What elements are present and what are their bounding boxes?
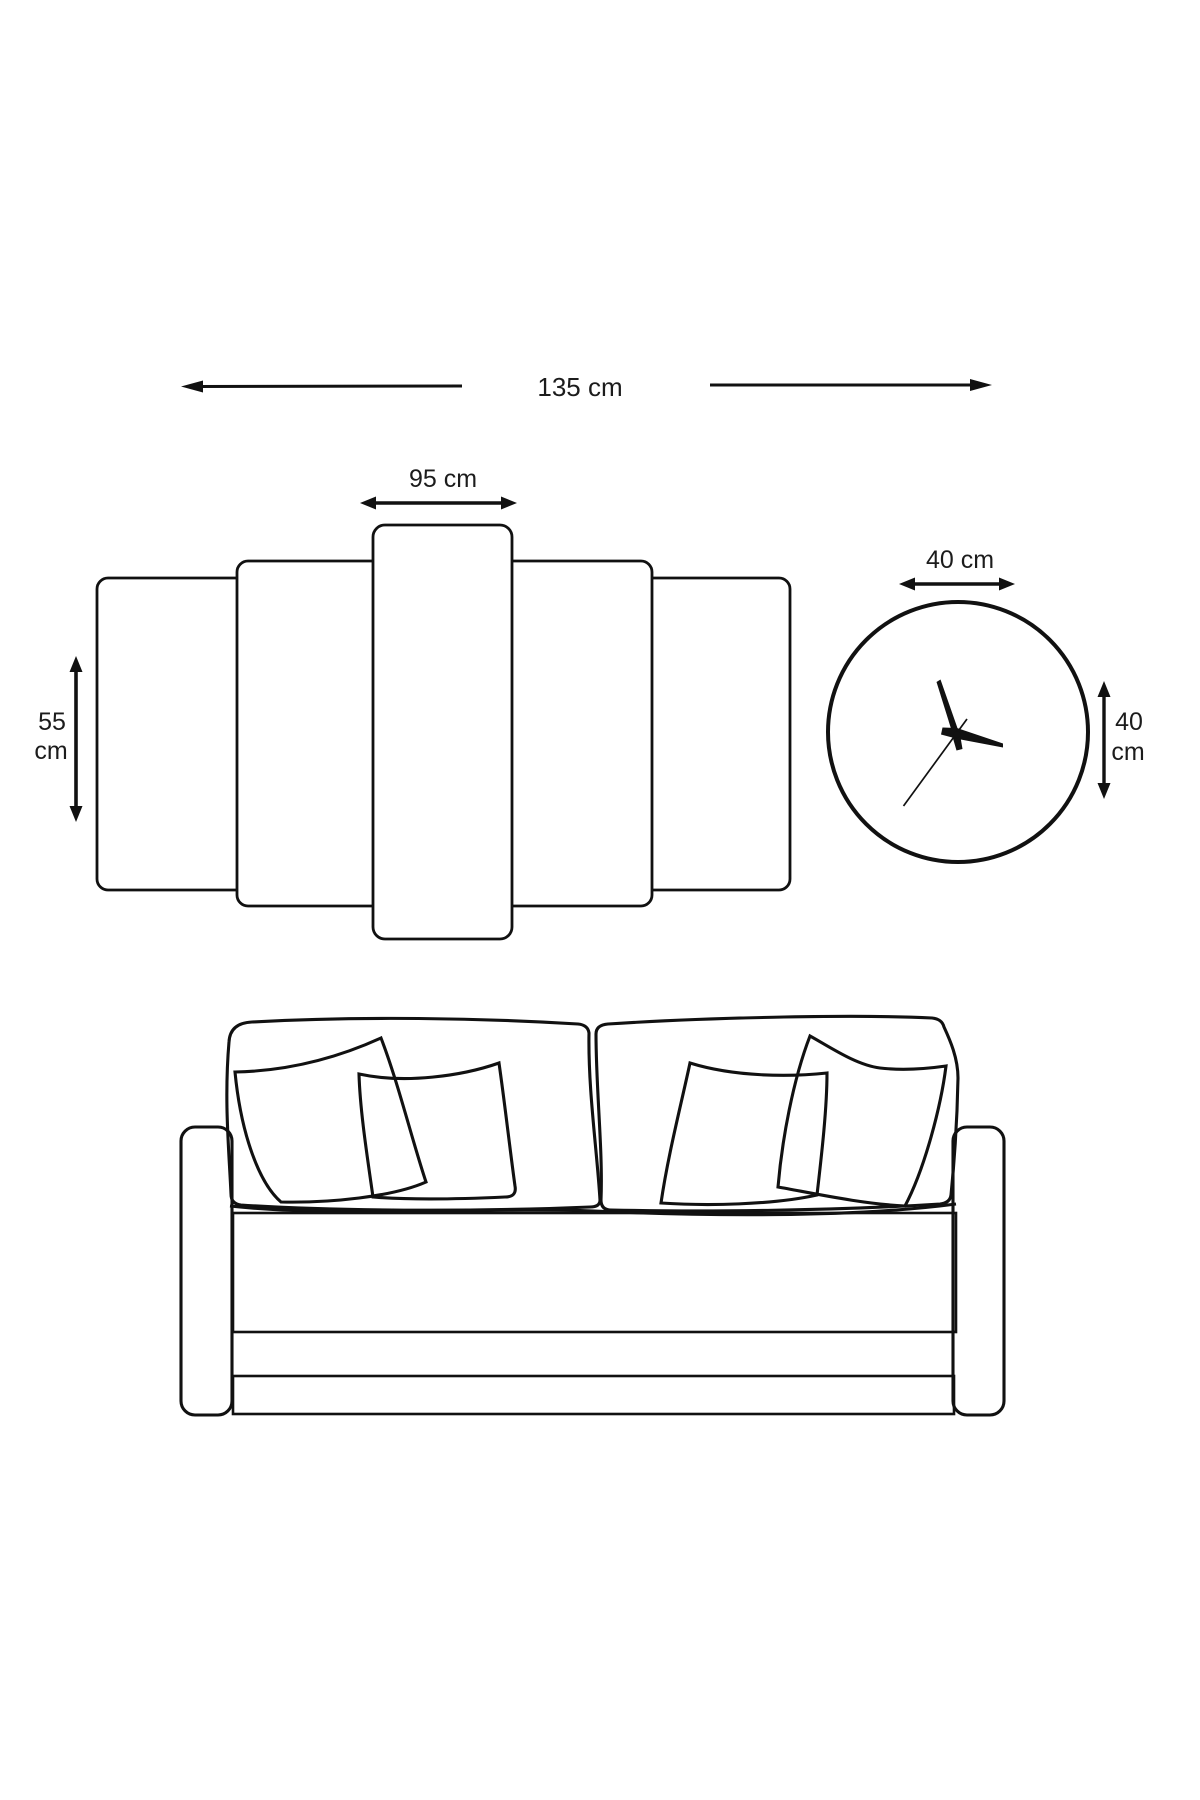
svg-text:40 cm: 40 cm	[926, 546, 994, 574]
svg-text:95 cm: 95 cm	[409, 465, 477, 493]
svg-text:135 cm: 135 cm	[537, 372, 622, 402]
svg-text:cm: cm	[1111, 738, 1144, 766]
svg-text:cm: cm	[34, 737, 67, 765]
svg-text:55: 55	[38, 708, 66, 736]
svg-text:40: 40	[1115, 708, 1143, 736]
